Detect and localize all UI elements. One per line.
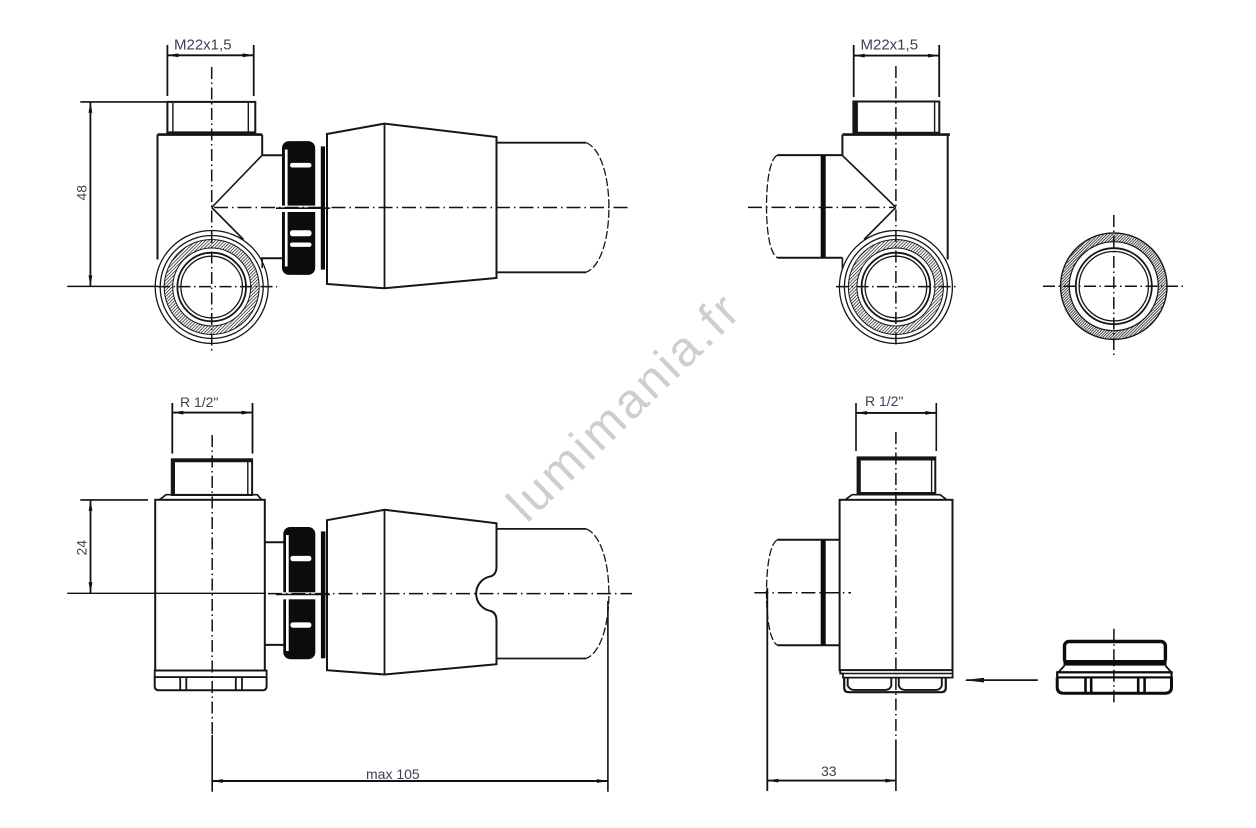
svg-text:24: 24 bbox=[74, 540, 90, 556]
svg-text:33: 33 bbox=[821, 763, 837, 779]
svg-text:R 1/2": R 1/2" bbox=[180, 394, 218, 410]
svg-text:R 1/2": R 1/2" bbox=[865, 393, 903, 409]
svg-text:48: 48 bbox=[74, 185, 90, 201]
svg-text:M22x1,5: M22x1,5 bbox=[174, 37, 232, 54]
svg-text:M22x1,5: M22x1,5 bbox=[861, 37, 919, 54]
svg-text:max 105: max 105 bbox=[366, 766, 420, 782]
